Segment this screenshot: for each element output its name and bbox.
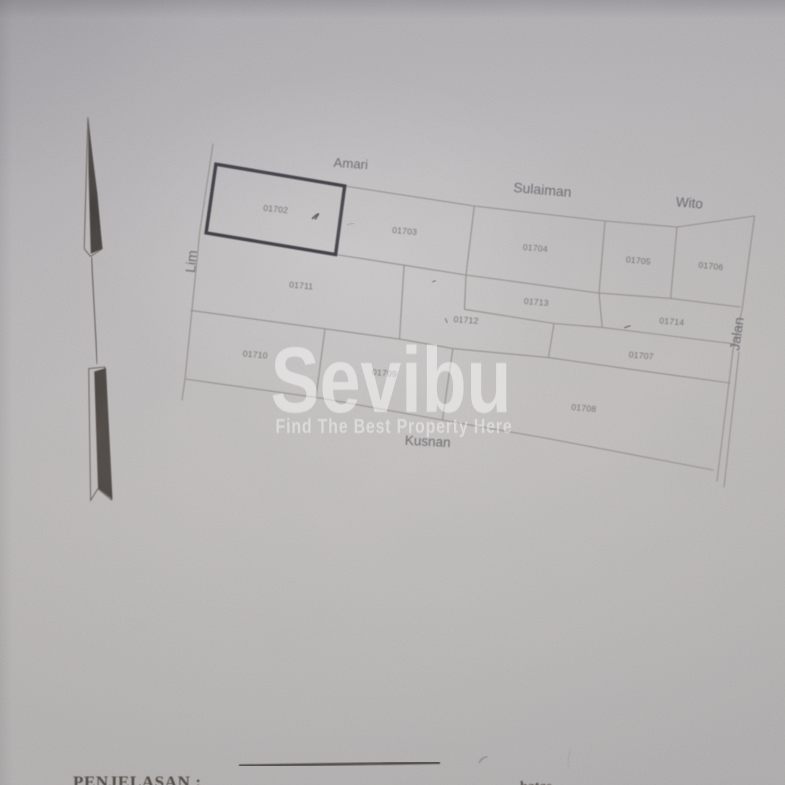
svg-text:Find The Best Property Here: Find The Best Property Here [276,414,513,437]
